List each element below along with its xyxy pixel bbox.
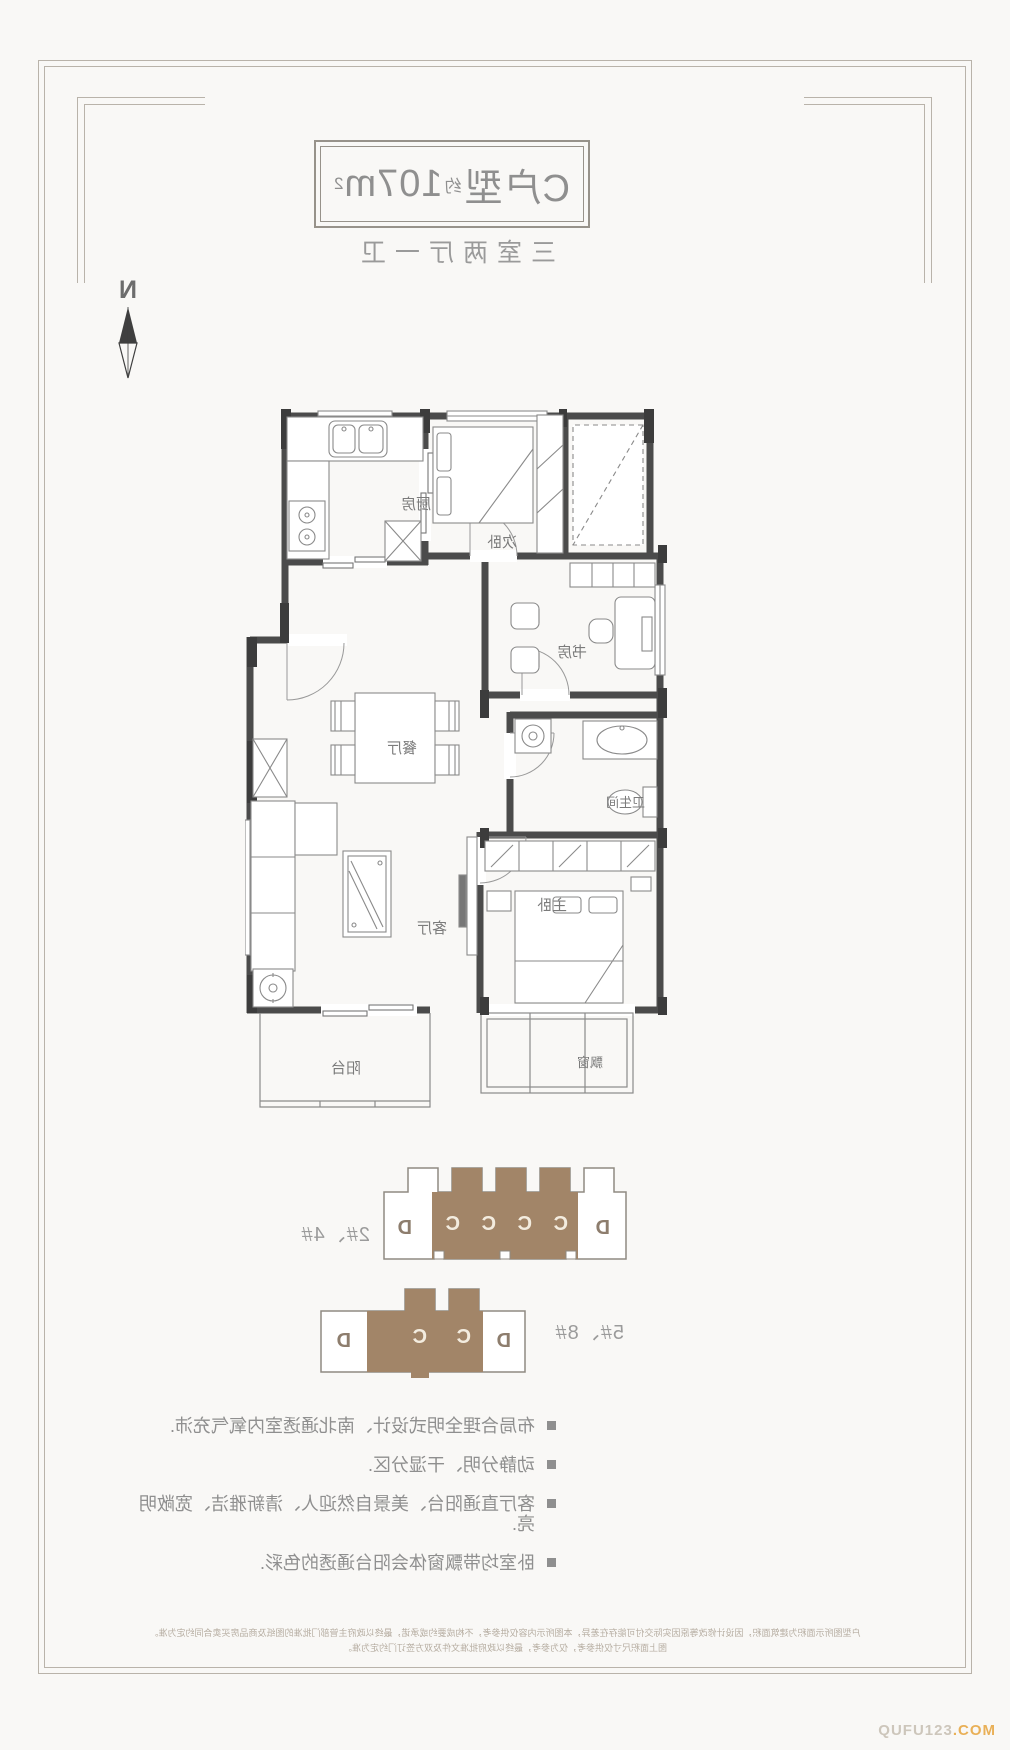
master-furniture [485,841,655,1003]
feature-text: 客厅直通阳台、美景自然迎人、清新雅洁、宽敞明亮. [136,1494,535,1534]
feature-text: 动静分明、干湿分区. [368,1455,535,1475]
unit-title: C户型 约 107m 2 [320,146,584,222]
bullet-square-icon [547,1499,556,1508]
unit-letter: C [457,1326,471,1348]
disclaimer-line1: 户型图所示面积为建筑面积，因设计修改等原因实际交付可能存在差异，本图所示内容仅供… [120,1626,890,1641]
building-footprint-2: D C C D [319,1285,527,1380]
unit-title-prefix: C户型 [464,157,570,212]
disclaimer-line2: 图上面积尺寸仅供参考，仅为参考，最终以政府批准文件及双方签订门约定为准。 [120,1641,890,1656]
unit-title-area: 107m [343,163,442,206]
room-label-living: 客厅 [417,920,447,937]
furniture [251,415,657,1007]
building1-notch [566,1251,576,1259]
unit-title-box: C户型 约 107m 2 [314,140,590,228]
floorplan-drawing: 厨房 次卧 书房 餐厅 客厅 卫生间 主卧 阳台 飘窗 [245,405,685,1120]
building-footprint-1: D C C C C D [382,1162,628,1265]
disclaimer: 户型图所示面积为建筑面积，因设计修改等原因实际交付可能存在差异，本图所示内容仅供… [120,1626,890,1656]
watermark-tld: .COM [953,1722,996,1739]
equipment-closet [573,425,643,545]
compass-needle-icon [115,307,141,379]
feature-list: 布局合理全明式设计、南北通透室内氧气充沛. 动静分明、干湿分区. 客厅直通阳台、… [136,1416,556,1592]
unit-letter: C [446,1213,460,1235]
compass: N [104,276,152,384]
corner-ornament-left-inner [804,104,925,283]
unit-title-sup: 2 [334,174,343,194]
unit-letter: C [554,1213,568,1235]
compass-letter: N [104,276,152,305]
bedroom2-furniture [433,415,563,553]
feature-item: 布局合理全明式设计、南北通透室内氧气充沛. [136,1416,556,1436]
building2-label: 5#、8# [534,1316,624,1345]
floorplan-page: C户型 约 107m 2 三室两厅一卫 N [0,0,1010,1750]
dining-furniture [253,693,459,797]
feature-text: 布局合理全明式设计、南北通透室内氧气充沛. [170,1416,535,1436]
bullet-square-icon [547,1558,556,1567]
corner-ornament-right-inner [84,104,205,283]
watermark: QUFU123.COM [878,1722,996,1739]
room-label-balcony: 阳台 [331,1060,361,1077]
unit-letter: D [398,1217,412,1239]
building1-notch [434,1251,444,1259]
mirrored-content: C户型 约 107m 2 三室两厅一卫 N [0,0,1010,1750]
feature-text: 卧室均带飘窗体会阳台通透的色彩. [260,1553,535,1573]
room-label-kitchen: 厨房 [401,496,431,513]
unit-letter: D [497,1330,511,1352]
building1-label: 2#、4# [301,1218,371,1247]
room-label-study: 书房 [557,644,587,661]
unit-letter: D [596,1217,610,1239]
unit-letter: C [482,1213,496,1235]
room-label-baywindow: 飘窗 [577,1055,603,1070]
unit-title-approx: 约 [445,172,462,197]
building1-notch [500,1251,510,1259]
room-label-bedroom2: 次卧 [487,534,517,551]
room-label-dining: 餐厅 [387,740,417,757]
bay-window [481,1013,633,1093]
unit-letter: D [337,1330,351,1352]
building2-stub [411,1372,429,1378]
feature-item: 客厅直通阳台、美景自然迎人、清新雅洁、宽敞明亮. [136,1494,556,1534]
unit-subtitle: 三室两厅一卫 [318,233,590,269]
living-furniture [251,801,477,1007]
watermark-name: QUFU123 [878,1722,953,1739]
unit-letter: C [413,1326,427,1348]
bullet-square-icon [547,1460,556,1469]
unit-letter: C [518,1213,532,1235]
bullet-square-icon [547,1421,556,1430]
room-label-bath: 卫生间 [606,795,645,810]
kitchen-furniture [287,417,423,561]
feature-item: 动静分明、干湿分区. [136,1455,556,1475]
feature-item: 卧室均带飘窗体会阳台通透的色彩. [136,1553,556,1573]
room-label-master: 主卧 [537,897,567,914]
